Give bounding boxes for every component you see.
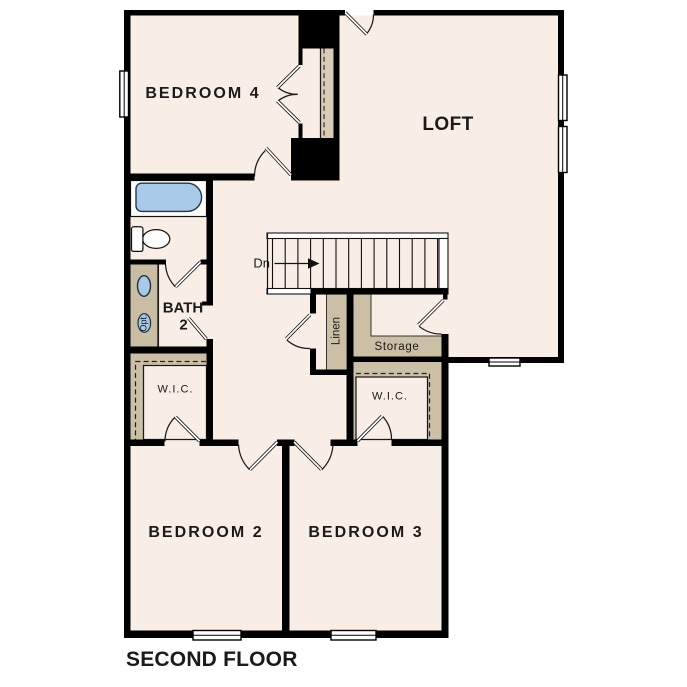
svg-text:Linen: Linen (331, 317, 343, 345)
svg-text:Opt.: Opt. (139, 314, 149, 331)
svg-text:BEDROOM 4: BEDROOM 4 (145, 85, 260, 102)
svg-text:SECOND FLOOR: SECOND FLOOR (126, 648, 298, 671)
svg-text:BEDROOM 2: BEDROOM 2 (148, 524, 263, 541)
svg-text:W.I.C.: W.I.C. (158, 384, 194, 396)
svg-text:LOFT: LOFT (422, 114, 473, 135)
svg-text:Dn: Dn (253, 256, 270, 271)
svg-text:BATH: BATH (163, 300, 204, 317)
svg-text:2: 2 (179, 317, 187, 334)
svg-text:W.I.C.: W.I.C. (372, 391, 408, 403)
svg-text:Storage: Storage (375, 341, 420, 353)
svg-text:BEDROOM 3: BEDROOM 3 (308, 524, 423, 541)
